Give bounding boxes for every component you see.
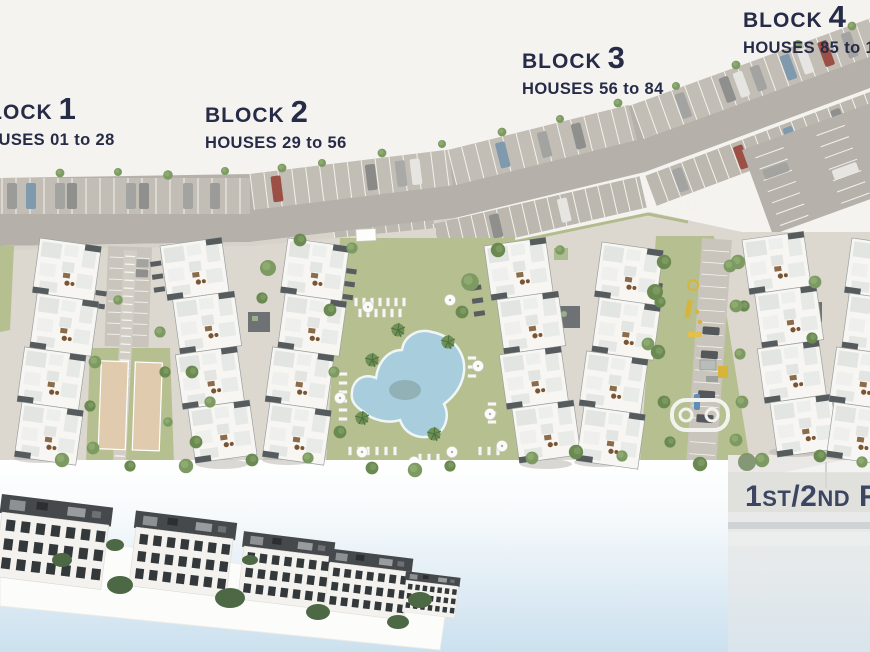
- block-2-number: 2: [291, 94, 308, 129]
- floor-label-part: ST: [762, 486, 791, 511]
- block-4-label: BLOCK4 HOUSES 85 to 1: [743, 2, 870, 58]
- floor-label: 1ST/2ND FL: [745, 480, 870, 516]
- block-2-label: BLOCK2 HOUSES 29 to 56: [205, 97, 347, 153]
- block-3-word: BLOCK: [522, 50, 602, 73]
- block-1-word: BLOCK: [0, 101, 53, 124]
- kiosk: [356, 228, 377, 241]
- block-4-number: 4: [829, 0, 846, 34]
- block-2-word: BLOCK: [205, 104, 285, 127]
- palm-shadow: [389, 380, 421, 400]
- floor-label-part: F: [850, 480, 870, 513]
- master-plan-graphic: [0, 0, 870, 652]
- block-1-label: BLOCK1 HOUSES 01 to 28: [0, 94, 115, 150]
- site-plan-page: BLOCK1 HOUSES 01 to 28 BLOCK2 HOUSES 29 …: [0, 0, 870, 652]
- block-4-word: BLOCK: [743, 9, 823, 32]
- block-2-houses: HOUSES 29 to 56: [205, 134, 347, 153]
- block-3-houses: HOUSES 56 to 84: [522, 80, 664, 99]
- floor-label-part: 1: [745, 480, 762, 513]
- block-4-houses: HOUSES 85 to 1: [743, 39, 870, 58]
- block-3-label: BLOCK3 HOUSES 56 to 84: [522, 43, 664, 99]
- block-1-houses: HOUSES 01 to 28: [0, 131, 115, 150]
- floor-label-part: ND: [817, 486, 850, 511]
- floor-label-part: /2: [791, 480, 817, 513]
- block-1-number: 1: [59, 91, 76, 126]
- block-3-number: 3: [608, 40, 625, 75]
